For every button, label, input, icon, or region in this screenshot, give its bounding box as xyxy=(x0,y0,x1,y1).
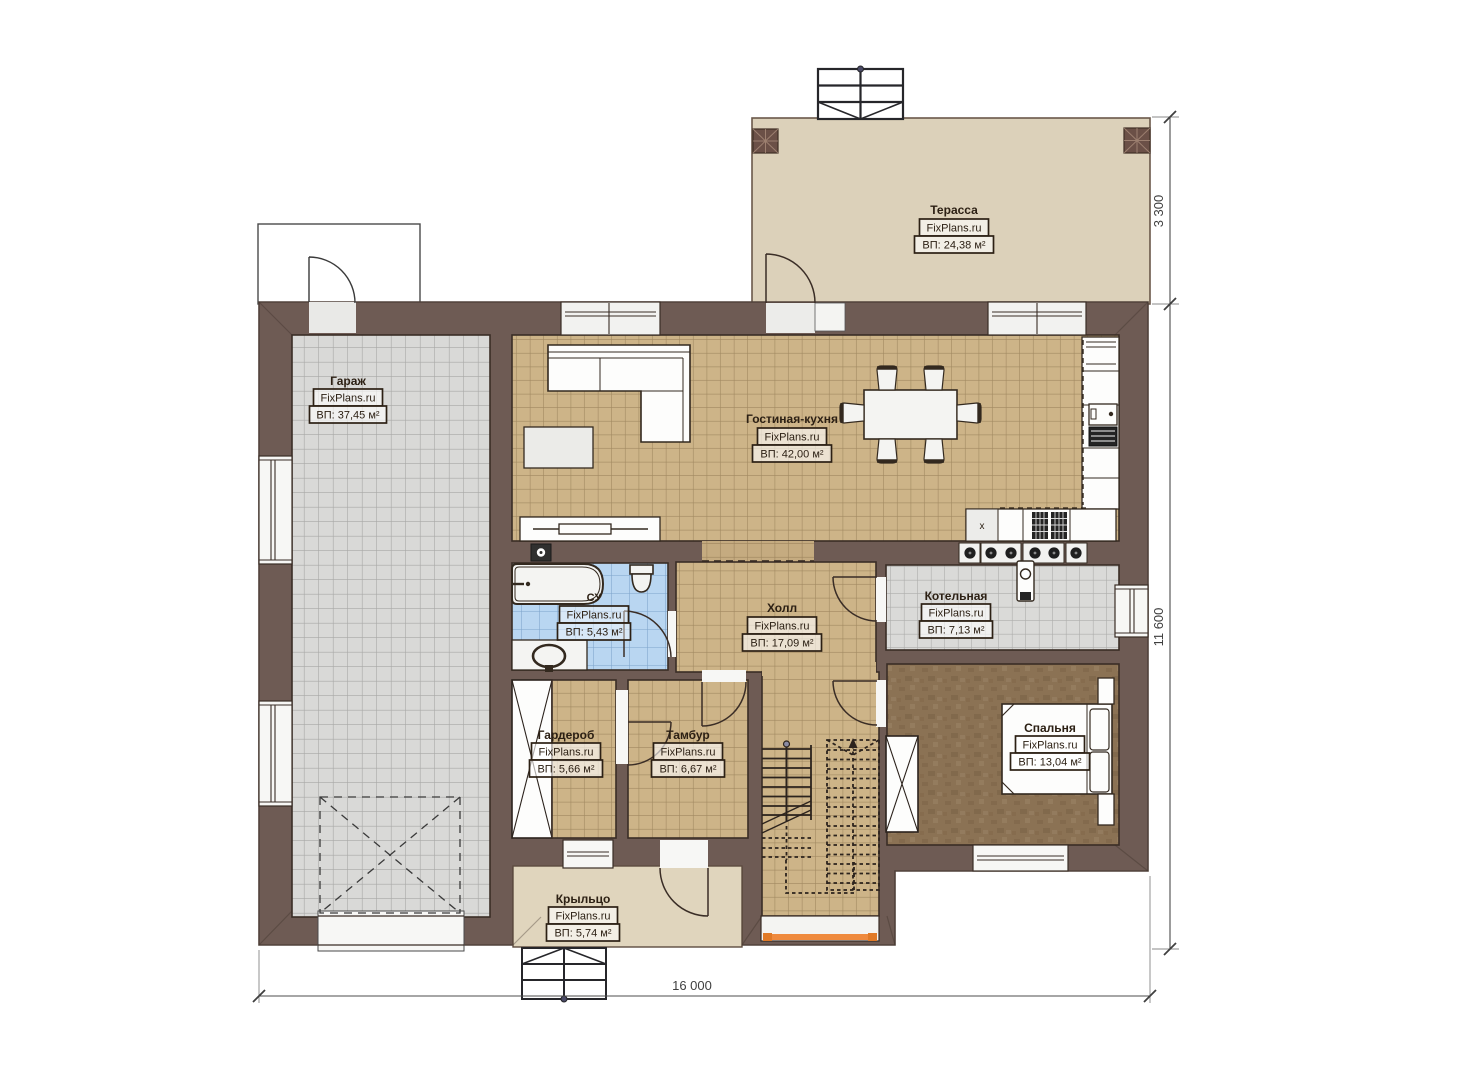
svg-text:FixPlans.ru: FixPlans.ru xyxy=(538,747,593,759)
svg-text:x: x xyxy=(980,521,985,532)
svg-text:ВП: 7,13 м²: ВП: 7,13 м² xyxy=(927,625,984,637)
svg-text:Холл: Холл xyxy=(767,601,797,615)
svg-text:ВП: 5,66 м²: ВП: 5,66 м² xyxy=(537,764,594,776)
svg-text:ВП: 24,38 м²: ВП: 24,38 м² xyxy=(922,240,986,252)
svg-text:Гараж: Гараж xyxy=(330,374,366,388)
svg-text:16 000: 16 000 xyxy=(672,978,712,993)
svg-text:ВП: 42,00 м²: ВП: 42,00 м² xyxy=(760,449,824,461)
svg-text:FixPlans.ru: FixPlans.ru xyxy=(566,610,621,622)
svg-text:ВП: 17,09 м²: ВП: 17,09 м² xyxy=(750,638,814,650)
svg-text:Гостиная-кухня: Гостиная-кухня xyxy=(746,412,838,426)
svg-text:ВП: 13,04 м²: ВП: 13,04 м² xyxy=(1018,757,1082,769)
svg-text:Гардероб: Гардероб xyxy=(538,728,595,742)
svg-text:Тамбур: Тамбур xyxy=(666,728,710,742)
svg-text:FixPlans.ru: FixPlans.ru xyxy=(320,393,375,405)
svg-text:Терасса: Терасса xyxy=(930,203,978,217)
svg-text:FixPlans.ru: FixPlans.ru xyxy=(1022,740,1077,752)
svg-text:FixPlans.ru: FixPlans.ru xyxy=(754,621,809,633)
svg-text:ВП: 5,43 м²: ВП: 5,43 м² xyxy=(565,627,622,639)
svg-text:FixPlans.ru: FixPlans.ru xyxy=(764,432,819,444)
svg-text:Крыльцо: Крыльцо xyxy=(556,892,611,906)
svg-text:FixPlans.ru: FixPlans.ru xyxy=(555,911,610,923)
svg-text:Котельная: Котельная xyxy=(925,589,988,603)
svg-text:FixPlans.ru: FixPlans.ru xyxy=(928,608,983,620)
svg-text:ВП: 5,74 м²: ВП: 5,74 м² xyxy=(554,928,611,940)
svg-text:11 600: 11 600 xyxy=(1151,608,1166,647)
svg-text:Спальня: Спальня xyxy=(1024,721,1076,735)
svg-text:FixPlans.ru: FixPlans.ru xyxy=(926,223,981,235)
svg-text:3 300: 3 300 xyxy=(1151,195,1166,228)
svg-text:СУ: СУ xyxy=(587,592,602,604)
svg-text:FixPlans.ru: FixPlans.ru xyxy=(660,747,715,759)
svg-text:ВП: 37,45 м²: ВП: 37,45 м² xyxy=(316,410,380,422)
svg-text:ВП: 6,67 м²: ВП: 6,67 м² xyxy=(659,764,716,776)
